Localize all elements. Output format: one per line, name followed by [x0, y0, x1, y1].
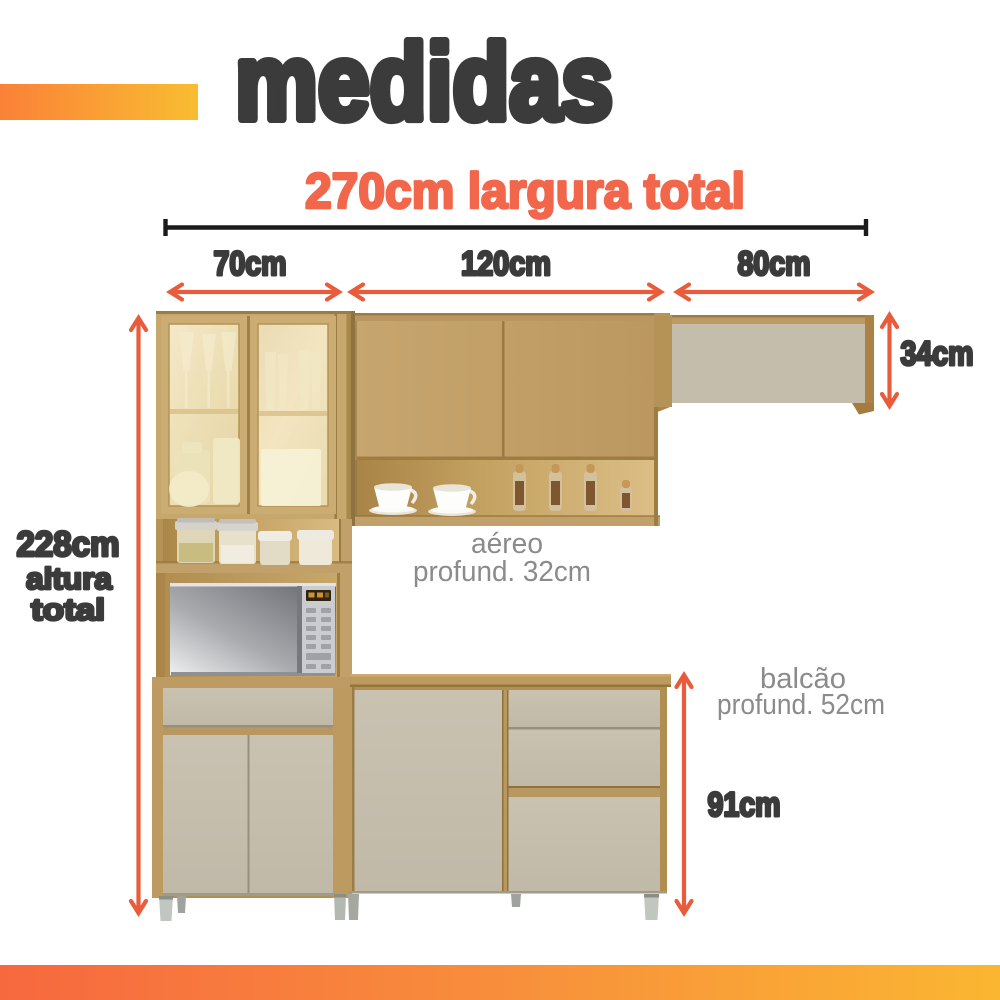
svg-text:medidas: medidas — [235, 21, 613, 142]
svg-text:91cm: 91cm — [708, 786, 781, 824]
svg-text:34cm: 34cm — [901, 335, 974, 373]
svg-text:228cm: 228cm — [17, 525, 120, 564]
svg-text:altura: altura — [26, 561, 113, 596]
svg-text:profund. 32cm: profund. 32cm — [413, 556, 591, 588]
svg-text:profund. 52cm: profund. 52cm — [717, 689, 885, 721]
svg-text:120cm: 120cm — [461, 245, 551, 283]
svg-text:total: total — [31, 592, 105, 627]
svg-text:70cm: 70cm — [214, 245, 287, 283]
svg-text:80cm: 80cm — [738, 245, 811, 283]
svg-text:270cm largura total: 270cm largura total — [305, 163, 745, 219]
